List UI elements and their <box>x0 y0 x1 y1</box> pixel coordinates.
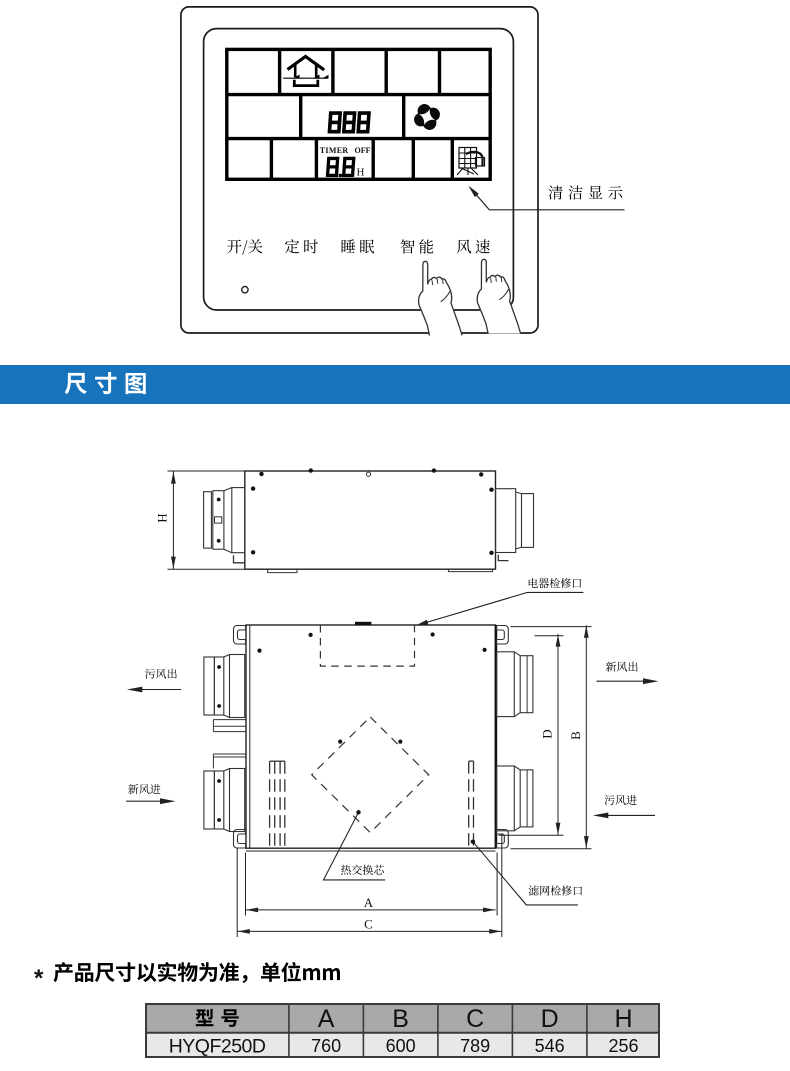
svg-text:C: C <box>466 1004 484 1032</box>
svg-text:B: B <box>568 731 583 740</box>
svg-text:HYQF250D: HYQF250D <box>169 1035 266 1057</box>
svg-text:C: C <box>364 916 373 931</box>
svg-text:TIMER: TIMER <box>320 146 349 155</box>
svg-text:H: H <box>155 513 170 522</box>
svg-text:D: D <box>541 1004 559 1032</box>
svg-text:256: 256 <box>608 1036 638 1056</box>
svg-text:OFF: OFF <box>355 146 371 155</box>
svg-text:D: D <box>540 729 555 738</box>
svg-text:546: 546 <box>535 1036 565 1056</box>
svg-text:A: A <box>364 895 374 910</box>
svg-text:789: 789 <box>460 1036 490 1056</box>
svg-text:B: B <box>392 1004 409 1032</box>
svg-text:H: H <box>357 167 365 179</box>
svg-text:760: 760 <box>311 1036 341 1056</box>
svg-text:A: A <box>318 1004 335 1032</box>
svg-text:H: H <box>614 1004 632 1032</box>
svg-text:*: * <box>34 965 44 992</box>
svg-text:600: 600 <box>386 1036 416 1056</box>
